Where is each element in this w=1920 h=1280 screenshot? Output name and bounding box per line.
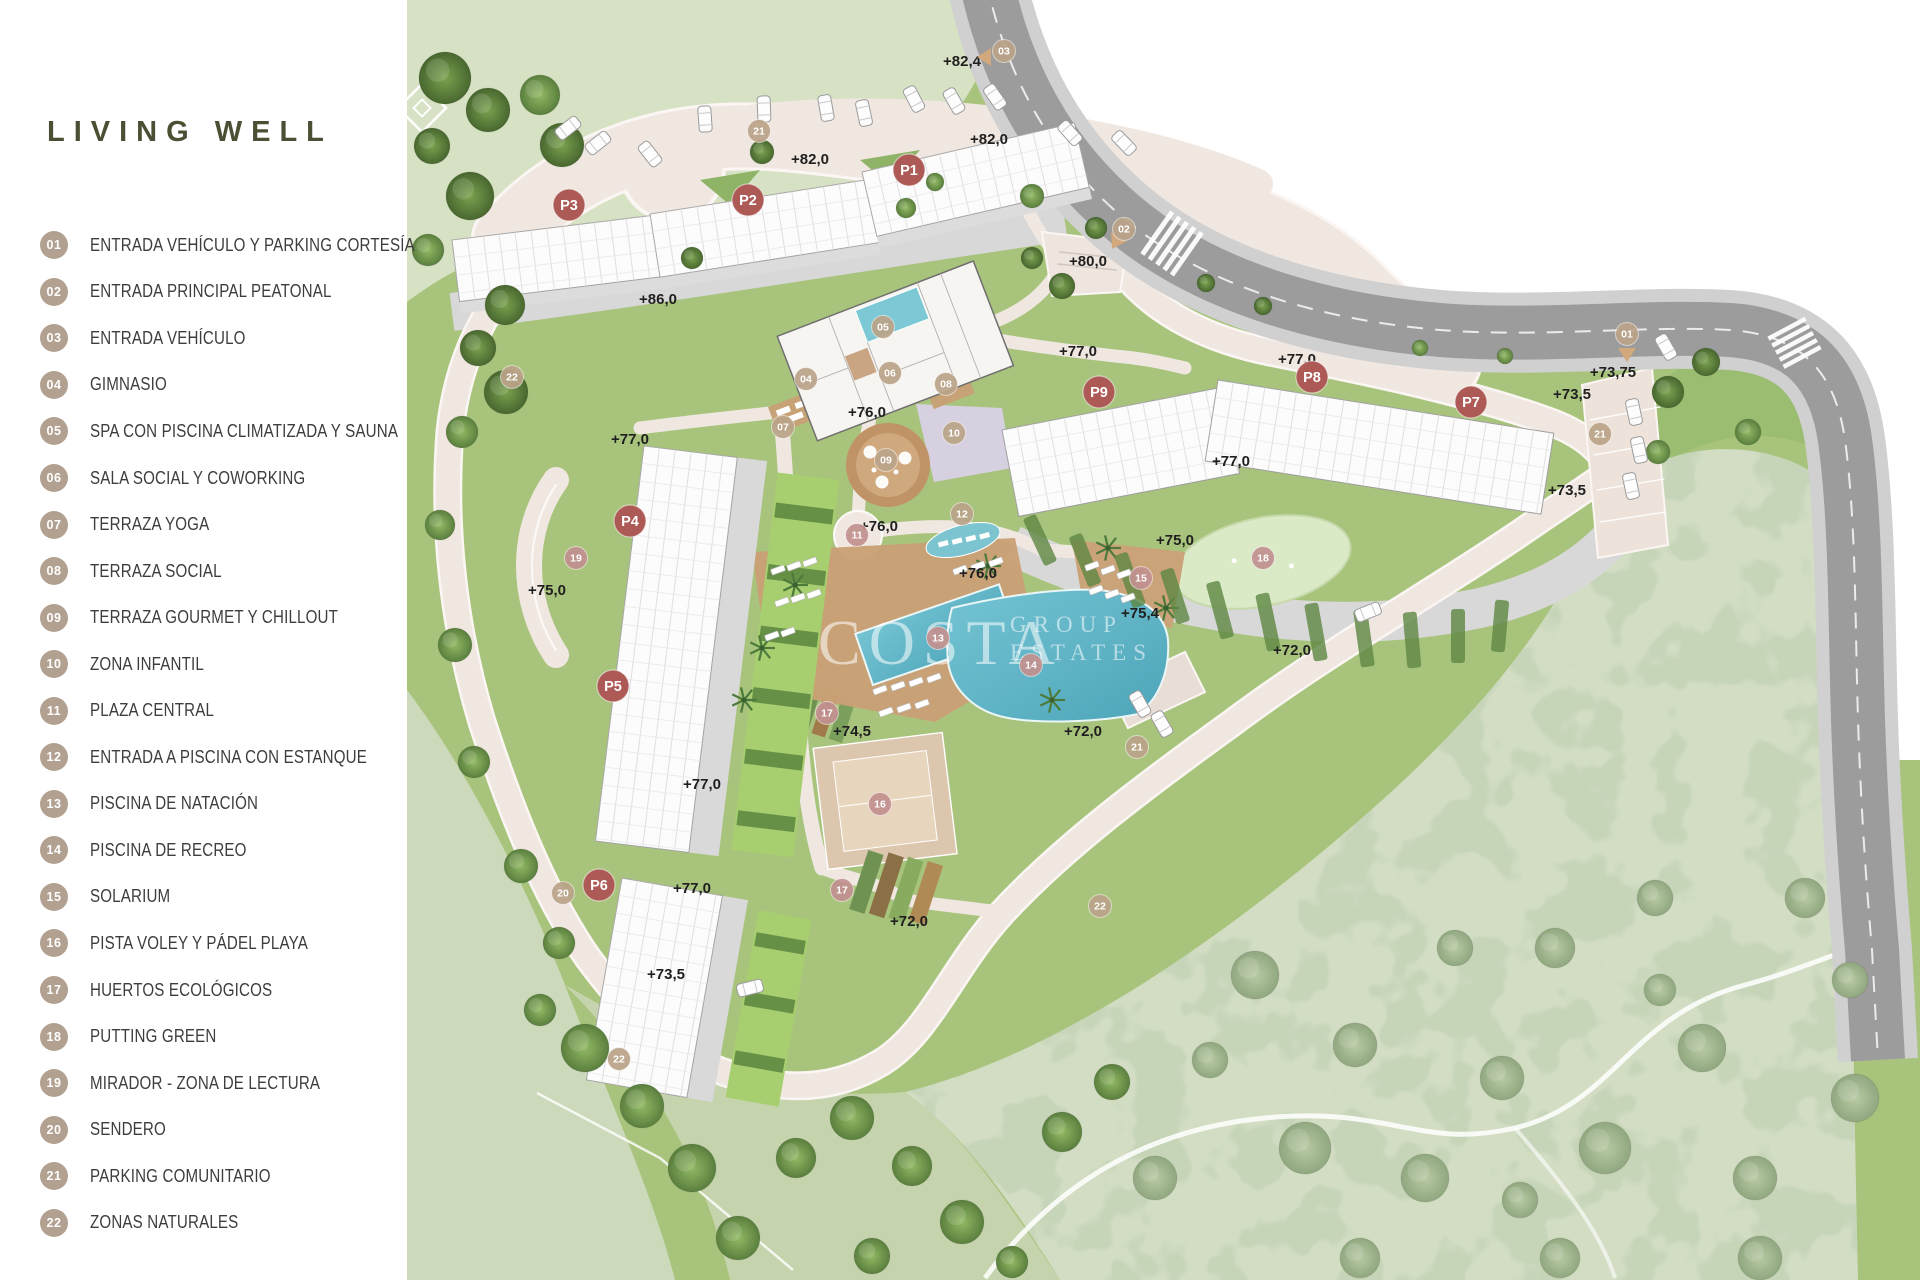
elevation-label: +86,0: [639, 291, 677, 308]
svg-text:06: 06: [884, 368, 896, 380]
tree-highlight: [1199, 276, 1207, 284]
tree-highlight: [1345, 1243, 1363, 1261]
legend-number-badge: 16: [40, 929, 68, 957]
svg-text:22: 22: [1094, 901, 1106, 913]
amenity-marker-14: 14: [1020, 654, 1043, 677]
svg-text:16: 16: [874, 799, 886, 811]
amenity-marker-04: 04: [795, 368, 818, 391]
elevation-label: +72,0: [890, 913, 928, 930]
svg-text:09: 09: [880, 455, 892, 467]
tree-highlight: [1024, 250, 1034, 260]
legend-number-badge: 15: [40, 883, 68, 911]
amenity-marker-10: 10: [943, 422, 966, 445]
tree-highlight: [1237, 957, 1259, 979]
legend-item-09: 09TERRAZA GOURMET Y CHILLOUT: [40, 594, 477, 641]
legend-label: PARKING COMUNITARIO: [90, 1166, 271, 1187]
legend-number-badge: 01: [40, 231, 68, 259]
elevation-label: +76,0: [959, 565, 997, 582]
legend-item-05: 05SPA CON PISCINA CLIMATIZADA Y SAUNA: [40, 408, 477, 455]
legend-label: ZONAS NATURALES: [90, 1212, 238, 1233]
legend-number-badge: 04: [40, 371, 68, 399]
tree-highlight: [472, 94, 492, 114]
elevation-label: +82,4: [943, 53, 982, 70]
amenity-marker-06: 06: [879, 362, 902, 385]
elevation-label: +75,4: [1121, 605, 1160, 622]
legend-item-12: 12ENTRADA A PISCINA CON ESTANQUE: [40, 734, 477, 781]
building-marker-P8: P8: [1296, 361, 1328, 393]
legend-label: PUTTING GREEN: [90, 1026, 217, 1047]
tree-highlight: [859, 1243, 875, 1259]
tree-highlight: [1696, 352, 1709, 365]
legend-item-10: 10ZONA INFANTIL: [40, 641, 477, 688]
svg-text:14: 14: [1025, 660, 1037, 672]
legend-label: TERRAZA YOGA: [90, 514, 209, 535]
amenity-marker-01: 01: [1616, 323, 1639, 346]
tree-highlight: [626, 1090, 646, 1110]
amenity-marker-08: 08: [935, 373, 958, 396]
amenity-marker-22: 22: [501, 366, 524, 389]
amenity-marker-11: 11: [846, 524, 869, 547]
legend-item-22: 22ZONAS NATURALES: [40, 1199, 477, 1246]
legend-number-badge: 21: [40, 1162, 68, 1190]
tree-highlight: [1414, 342, 1421, 349]
legend-label: MIRADOR - ZONA DE LECTURA: [90, 1073, 320, 1094]
building-marker-P7: P7: [1455, 386, 1487, 418]
elevation-label: +74,5: [833, 723, 871, 740]
svg-text:01: 01: [1621, 329, 1633, 341]
legend-number-badge: 14: [40, 836, 68, 864]
legend-label: PLAZA CENTRAL: [90, 700, 214, 721]
amenity-marker-03: 03: [993, 40, 1016, 63]
amenity-marker-07: 07: [772, 416, 795, 439]
amenity-marker-17: 17: [816, 702, 839, 725]
elevation-label: +77,0: [1212, 453, 1250, 470]
elevation-label: +72,0: [1064, 723, 1102, 740]
amenity-marker-15: 15: [1130, 567, 1153, 590]
tree-highlight: [1739, 422, 1751, 434]
amenity-marker-21: 21: [1589, 423, 1612, 446]
svg-text:18: 18: [1257, 553, 1269, 565]
amenity-marker-20: 20: [552, 882, 575, 905]
tree-highlight: [928, 175, 936, 183]
building-marker-P9: P9: [1083, 376, 1115, 408]
amenity-marker-19: 19: [565, 547, 588, 570]
svg-text:21: 21: [753, 126, 765, 138]
amenity-marker-17: 17: [831, 879, 854, 902]
legend-label: ENTRADA VEHÍCULO: [90, 328, 246, 349]
page-title: LIVING WELL: [47, 116, 333, 149]
elevation-label: +82,0: [970, 131, 1008, 148]
svg-text:P7: P7: [1462, 395, 1480, 411]
tree-highlight: [1286, 1129, 1309, 1152]
legend-label: ENTRADA VEHÍCULO Y PARKING CORTESÍA: [90, 235, 415, 256]
svg-text:10: 10: [948, 428, 960, 440]
elevation-label: +80,0: [1069, 253, 1107, 270]
tree-highlight: [1545, 1243, 1563, 1261]
svg-text:13: 13: [932, 633, 944, 645]
amenity-marker-21: 21: [748, 120, 771, 143]
legend-item-03: 03ENTRADA VEHÍCULO: [40, 315, 477, 362]
elevation-label: +77,0: [611, 431, 649, 448]
tree-highlight: [753, 143, 764, 154]
legend-list: 01ENTRADA VEHÍCULO Y PARKING CORTESÍA02E…: [40, 222, 477, 1246]
elevation-label: +77,0: [673, 880, 711, 897]
elevation-label: +82,0: [791, 151, 829, 168]
legend-item-08: 08TERRAZA SOCIAL: [40, 548, 477, 595]
tree-highlight: [1837, 1080, 1859, 1102]
amenity-marker-18: 18: [1252, 547, 1275, 570]
svg-text:15: 15: [1135, 573, 1147, 585]
legend-item-14: 14PISCINA DE RECREO: [40, 827, 477, 874]
tree-highlight: [1442, 935, 1458, 951]
legend-label: ENTRADA PRINCIPAL PEATONAL: [90, 281, 332, 302]
legend-label: PISCINA DE RECREO: [90, 840, 247, 861]
svg-text:21: 21: [1131, 742, 1143, 754]
svg-text:17: 17: [836, 885, 848, 897]
legend-item-04: 04GIMNASIO: [40, 362, 477, 409]
tree-highlight: [1486, 1062, 1506, 1082]
legend-label: TERRAZA GOURMET Y CHILLOUT: [90, 607, 338, 628]
amenity-marker-13: 13: [927, 627, 950, 650]
amenity-marker-09: 09: [875, 449, 898, 472]
tree-highlight: [1099, 1069, 1115, 1085]
legend-label: PISTA VOLEY Y PÁDEL PLAYA: [90, 933, 308, 954]
tree-highlight: [426, 58, 449, 81]
building-marker-P1: P1: [893, 154, 925, 186]
tree-highlight: [899, 201, 908, 210]
svg-text:P8: P8: [1303, 370, 1321, 386]
elevation-label: +77,0: [1059, 343, 1097, 360]
svg-text:11: 11: [851, 530, 862, 542]
svg-text:04: 04: [800, 374, 812, 386]
car-icon: [698, 106, 713, 133]
legend-label: SENDERO: [90, 1119, 166, 1140]
legend-number-badge: 06: [40, 464, 68, 492]
legend-number-badge: 17: [40, 976, 68, 1004]
legend-number-badge: 08: [40, 557, 68, 585]
amenity-marker-05: 05: [872, 316, 895, 339]
tree-highlight: [1407, 1160, 1429, 1182]
tree-highlight: [1684, 1030, 1706, 1052]
legend-label: ZONA INFANTIL: [90, 654, 204, 675]
svg-text:P6: P6: [590, 878, 608, 894]
tree-highlight: [1339, 1029, 1359, 1049]
svg-text:02: 02: [1118, 224, 1130, 236]
legend-item-18: 18PUTTING GREEN: [40, 1013, 477, 1060]
svg-text:05: 05: [877, 322, 889, 334]
amenity-marker-12: 12: [951, 503, 974, 526]
svg-text:P1: P1: [900, 163, 918, 179]
tree-highlight: [946, 1206, 966, 1226]
svg-text:12: 12: [956, 509, 968, 521]
tree-highlight: [1256, 299, 1264, 307]
svg-text:P3: P3: [560, 198, 578, 214]
amenity-marker-22: 22: [1089, 895, 1112, 918]
legend-item-13: 13PISCINA DE NATACIÓN: [40, 781, 477, 828]
page: { "title": "LIVING WELL", "watermark": {…: [0, 0, 1920, 1280]
tree-highlight: [1744, 1242, 1764, 1262]
elevation-label: +73,5: [647, 966, 685, 983]
tree-highlight: [1053, 276, 1065, 288]
elevation-label: +75,0: [1156, 532, 1194, 549]
tree-highlight: [1197, 1047, 1213, 1063]
tree-highlight: [1739, 1162, 1759, 1182]
amenity-marker-02: 02: [1113, 218, 1136, 241]
legend-label: SPA CON PISCINA CLIMATIZADA Y SAUNA: [90, 421, 398, 442]
tree-highlight: [525, 80, 543, 98]
legend-item-20: 20SENDERO: [40, 1106, 477, 1153]
tree-highlight: [1837, 967, 1853, 983]
legend-item-16: 16PISTA VOLEY Y PÁDEL PLAYA: [40, 920, 477, 967]
legend-label: GIMNASIO: [90, 374, 167, 395]
tree-highlight: [897, 1151, 915, 1169]
elevation-label: +76,0: [848, 404, 886, 421]
elevation-label: +73,5: [1548, 482, 1586, 499]
amenity-marker-22: 22: [608, 1048, 631, 1071]
svg-text:07: 07: [777, 422, 789, 434]
legend-number-badge: 11: [40, 697, 68, 725]
building-marker-P6: P6: [583, 869, 615, 901]
legend-item-21: 21PARKING COMUNITARIO: [40, 1153, 477, 1200]
legend-label: PISCINA DE NATACIÓN: [90, 793, 258, 814]
tree-highlight: [674, 1150, 696, 1172]
building-marker-P2: P2: [732, 184, 764, 216]
legend-number-badge: 12: [40, 743, 68, 771]
legend-number-badge: 19: [40, 1069, 68, 1097]
watermark-line2: GROUP: [1010, 612, 1123, 637]
legend-number-badge: 02: [40, 278, 68, 306]
svg-text:22: 22: [613, 1054, 625, 1066]
svg-text:21: 21: [1594, 429, 1606, 441]
legend-number-badge: 10: [40, 650, 68, 678]
tree-highlight: [1642, 885, 1658, 901]
legend-number-badge: 18: [40, 1023, 68, 1051]
tree-highlight: [1648, 978, 1662, 992]
svg-text:19: 19: [570, 553, 582, 565]
tree-highlight: [567, 1030, 589, 1052]
tree-highlight: [1023, 187, 1034, 198]
tree-highlight: [836, 1102, 856, 1122]
elevation-label: +77,0: [683, 776, 721, 793]
tree-highlight: [1586, 1129, 1609, 1152]
amenity-marker-21: 21: [1126, 736, 1149, 759]
legend-number-badge: 09: [40, 604, 68, 632]
svg-text:17: 17: [821, 708, 833, 720]
legend-label: ENTRADA A PISCINA CON ESTANQUE: [90, 747, 367, 768]
tree-highlight: [509, 853, 524, 868]
legend-number-badge: 05: [40, 417, 68, 445]
legend-label: TERRAZA SOCIAL: [90, 561, 222, 582]
svg-text:22: 22: [506, 372, 518, 384]
legend-item-07: 07TERRAZA YOGA: [40, 501, 477, 548]
tree-highlight: [1088, 220, 1098, 230]
building-marker-P3: P3: [553, 189, 585, 221]
legend-item-19: 19MIRADOR - ZONA DE LECTURA: [40, 1060, 477, 1107]
building-marker-P5: P5: [597, 670, 629, 702]
svg-text:P9: P9: [1090, 385, 1108, 401]
tree-highlight: [1139, 1162, 1159, 1182]
tree-highlight: [684, 250, 694, 260]
tree-highlight: [547, 931, 561, 945]
legend-item-17: 17HUERTOS ECOLÓGICOS: [40, 967, 477, 1014]
legend-number-badge: 22: [40, 1209, 68, 1237]
tree-highlight: [490, 290, 508, 308]
tree-highlight: [1540, 933, 1558, 951]
legend-label: SALA SOCIAL Y COWORKING: [90, 468, 305, 489]
svg-text:P5: P5: [604, 679, 622, 695]
tree-highlight: [528, 998, 542, 1012]
legend-panel: LIVING WELL 01ENTRADA VEHÍCULO Y PARKING…: [0, 0, 405, 1280]
legend-number-badge: 20: [40, 1116, 68, 1144]
amenity-marker-16: 16: [869, 793, 892, 816]
tree-highlight: [1656, 380, 1670, 394]
elevation-label: +73,5: [1553, 386, 1591, 403]
legend-label: HUERTOS ECOLÓGICOS: [90, 980, 272, 1001]
legend-number-badge: 03: [40, 324, 68, 352]
hedge: [1451, 609, 1465, 663]
tree-highlight: [1790, 883, 1808, 901]
tree-highlight: [1499, 350, 1506, 357]
tree-highlight: [1649, 443, 1660, 454]
tree-highlight: [781, 1143, 799, 1161]
car-icon: [757, 96, 771, 122]
legend-item-06: 06SALA SOCIAL Y COWORKING: [40, 455, 477, 502]
legend-item-01: 01ENTRADA VEHÍCULO Y PARKING CORTESÍA: [40, 222, 477, 269]
tree-highlight: [1507, 1187, 1523, 1203]
elevation-label: +72,0: [1273, 642, 1311, 659]
legend-label: SOLARIUM: [90, 886, 170, 907]
tree-highlight: [1047, 1117, 1065, 1135]
tree-highlight: [419, 133, 435, 149]
tree-highlight: [1000, 1250, 1014, 1264]
svg-text:P4: P4: [621, 514, 639, 530]
svg-text:03: 03: [998, 46, 1010, 58]
building-marker-P4: P4: [614, 505, 646, 537]
svg-text:P2: P2: [739, 193, 757, 209]
tree-highlight: [722, 1222, 742, 1242]
svg-text:20: 20: [557, 888, 569, 900]
svg-text:08: 08: [940, 379, 952, 391]
legend-item-15: 15SOLARIUM: [40, 874, 477, 921]
legend-item-02: 02ENTRADA PRINCIPAL PEATONAL: [40, 269, 477, 316]
elevation-label: +75,0: [528, 582, 566, 599]
elevation-label: +73,75: [1590, 364, 1636, 381]
legend-item-11: 11PLAZA CENTRAL: [40, 687, 477, 734]
tree-highlight: [452, 178, 474, 200]
legend-number-badge: 13: [40, 790, 68, 818]
legend-number-badge: 07: [40, 511, 68, 539]
